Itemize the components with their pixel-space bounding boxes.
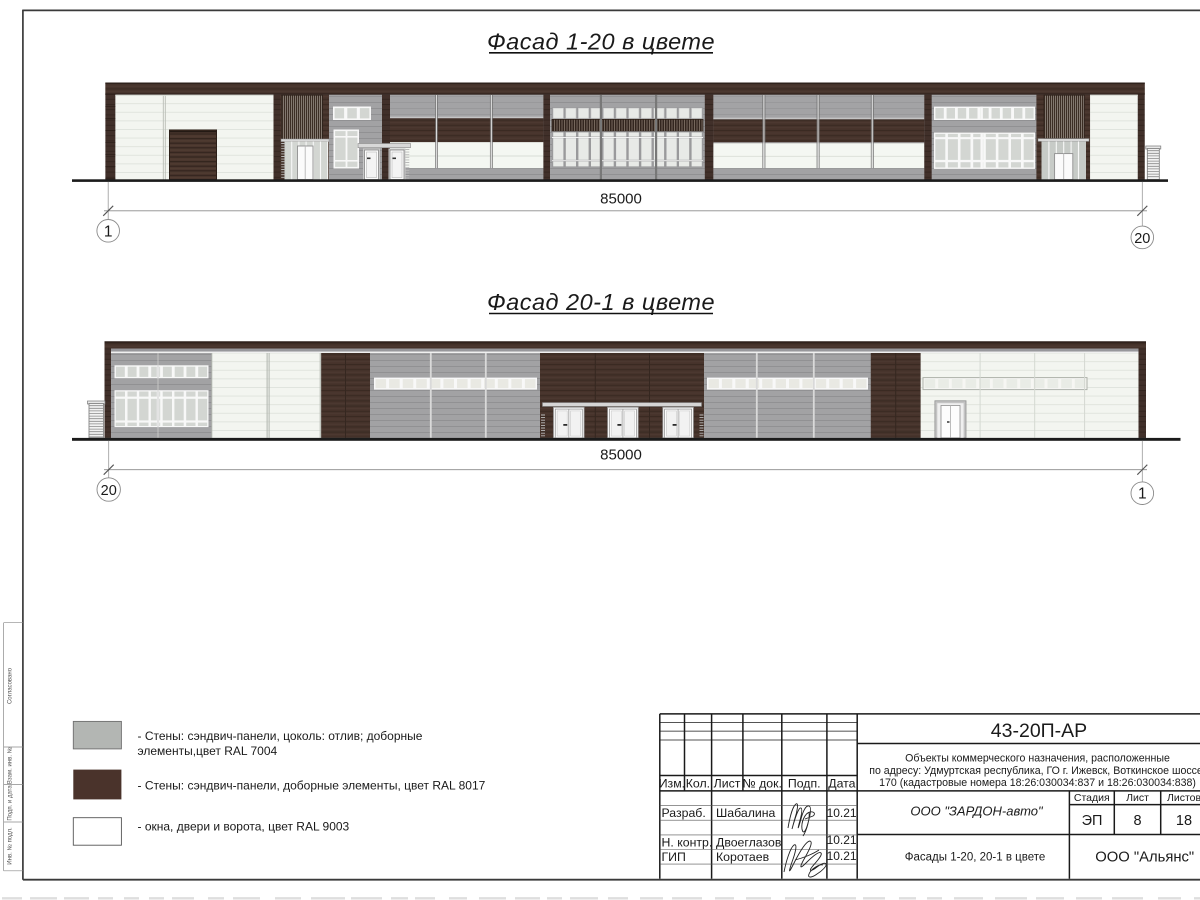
svg-text:Листов: Листов [1167,792,1200,804]
svg-text:- Стены: сэндвич-панели, цокол: - Стены: сэндвич-панели, цоколь: отлив; … [138,729,423,743]
svg-text:85000: 85000 [600,190,642,207]
svg-text:Шабалина: Шабалина [716,806,776,820]
svg-text:Н. контр.: Н. контр. [662,835,713,849]
svg-text:10.21: 10.21 [827,849,857,863]
svg-text:Подп.: Подп. [788,777,821,791]
svg-text:Лист: Лист [714,777,741,791]
svg-text:ЭП: ЭП [1082,813,1103,829]
svg-text:Стадия: Стадия [1074,792,1110,804]
svg-text:Лист: Лист [1126,792,1149,804]
svg-text:Коротаев: Коротаев [716,850,769,864]
svg-text:20: 20 [1134,231,1150,247]
svg-text:18: 18 [1176,813,1192,829]
svg-text:8: 8 [1133,813,1141,829]
svg-text:Дата: Дата [828,777,855,791]
svg-text:по адресу: Удмуртская республи: по адресу: Удмуртская республика, ГО г. … [869,765,1200,777]
svg-text:ООО "Альянс": ООО "Альянс" [1095,850,1194,866]
svg-text:Согласовано: Согласовано [8,667,14,704]
svg-text:Фасад 20-1 в цвете: Фасад 20-1 в цвете [487,289,715,315]
svg-text:Инв. № подл.: Инв. № подл. [7,827,14,865]
svg-text:Фасады 1-20, 20-1 в цвете: Фасады 1-20, 20-1 в цвете [905,852,1046,864]
svg-text:20: 20 [101,483,117,499]
svg-text:ГИП: ГИП [662,850,686,864]
svg-text:85000: 85000 [600,446,642,463]
svg-text:43-20П-АР: 43-20П-АР [991,720,1087,742]
svg-text:Фасад 1-20 в цвете: Фасад 1-20 в цвете [487,28,715,54]
svg-text:Изм.: Изм. [659,777,685,791]
svg-text:Разраб.: Разраб. [662,806,706,820]
svg-text:Взам. инв. №: Взам. инв. № [7,747,14,784]
svg-text:Подп. и дата: Подп. и дата [8,785,14,821]
svg-text:- Стены: сэндвич-панели, добор: - Стены: сэндвич-панели, доборные элемен… [138,779,486,793]
svg-text:10.21: 10.21 [827,833,857,847]
svg-text:10.21: 10.21 [827,806,857,820]
svg-text:элементы,цвет RAL 7004: элементы,цвет RAL 7004 [138,744,278,758]
svg-text:- окна, двери и ворота, цвет R: - окна, двери и ворота, цвет RAL 9003 [138,820,350,834]
svg-text:Двоеглазов: Двоеглазов [716,835,781,849]
svg-text:1: 1 [1138,486,1147,503]
svg-text:ООО "ЗАРДОН-авто": ООО "ЗАРДОН-авто" [910,804,1044,819]
svg-text:170 (кадастровые номера 18:26:: 170 (кадастровые номера 18:26:030034:837… [879,777,1196,789]
svg-text:Кол.: Кол. [686,777,710,791]
svg-text:1: 1 [104,223,113,240]
svg-text:Объекты коммерческого назначен: Объекты коммерческого назначения, распол… [905,752,1170,764]
svg-text:№ док.: № док. [742,777,781,791]
